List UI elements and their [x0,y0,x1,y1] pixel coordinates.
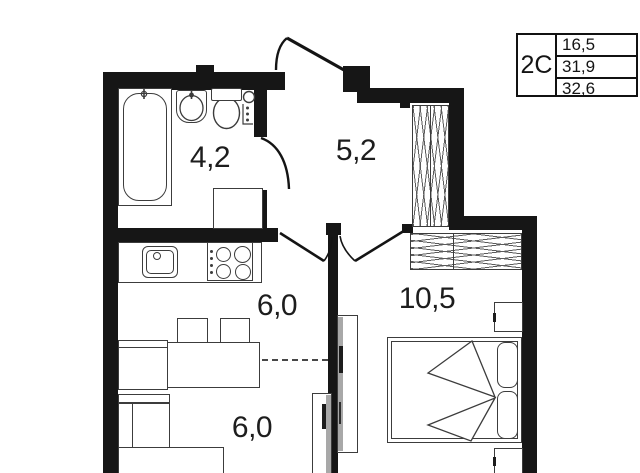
bedroom-area-label: 10,5 [394,284,460,314]
sliding-panel-bedroom [337,315,358,453]
wardrobe-jamb-tick [400,101,410,108]
wall-bathroom-right-upper [254,88,267,137]
stove-knob [210,257,213,260]
bedroom-door-leaf [355,229,407,261]
apartment-areas-column: 16,5 31,9 32,6 [557,35,636,95]
wall-divider-stub [326,223,341,235]
chair-icon [177,318,208,343]
pillow-icon [497,391,518,439]
total-area-value: 32,6 [557,79,636,99]
toilet-bowl-icon [214,98,240,129]
panel-track [338,317,343,451]
meter-dot [246,113,249,116]
pillow-icon [497,342,518,388]
panel-track [326,395,331,473]
bathtub-icon [123,93,167,201]
bedroom-door-swing-arc [340,236,355,261]
nightstand-handle [493,457,496,466]
meter-bracket [243,104,253,124]
burner-icon [235,264,251,280]
stove-knob [210,264,213,267]
nightstand-icon [494,302,523,332]
nightstand-icon [494,448,523,473]
floor-plan: 4,2 5,2 6,0 10,5 6,0 2С 16,5 31,9 32,6 [0,0,640,473]
apartment-type-label: 2С [518,35,557,95]
sofa-backrest [118,394,170,403]
sofa-chaise [118,447,224,473]
bath-sink-icon [176,90,207,123]
panel-handle [339,346,343,373]
meter-dot [246,107,249,110]
cabinet-edge-line [118,347,168,348]
chair-icon [220,318,250,343]
wardrobe-divider-line [453,233,454,270]
wall-vent-tick [196,65,214,72]
panel-handle [339,402,341,424]
stove-knob [210,271,213,274]
wall-right-outer [522,216,537,473]
toilet-tank-icon [211,88,242,101]
meter-dot [246,119,249,122]
kitchen-door-leaf [280,233,324,261]
living-area-label: 6,0 [225,413,279,443]
wall-bathroom-bottom [103,228,278,242]
usable-area-value: 31,9 [557,57,636,79]
apartment-info-table: 2С 16,5 31,9 32,6 [516,33,638,97]
panel-handle [322,404,326,429]
hallway-area-label: 5,2 [329,136,383,166]
bedroom-wardrobe-icon [410,233,522,270]
nightstand-handle [493,313,496,322]
kitchen-sink-drain [153,252,161,260]
wall-hallway-top [357,88,464,103]
wall-left-outer [103,72,118,473]
living-area-value: 16,5 [557,35,636,57]
entrance-door-swing-arc [276,38,287,70]
bathroom-door-swing-arc [261,138,289,189]
wardrobe-divider-line [430,105,431,227]
stove-knob [210,250,213,253]
bathroom-area-label: 4,2 [183,143,237,173]
burner-icon [234,246,251,263]
water-meter-icon [244,92,255,103]
burner-icon [216,247,231,262]
wall-hallway-right [449,95,464,230]
kitchen-living-boundary-dashed-line [262,359,328,361]
kitchen-area-label: 6,0 [250,291,304,321]
burner-icon [216,264,231,279]
entrance-door-leaf [287,38,344,70]
washing-machine-icon [213,188,263,229]
dining-table-icon [167,342,260,388]
